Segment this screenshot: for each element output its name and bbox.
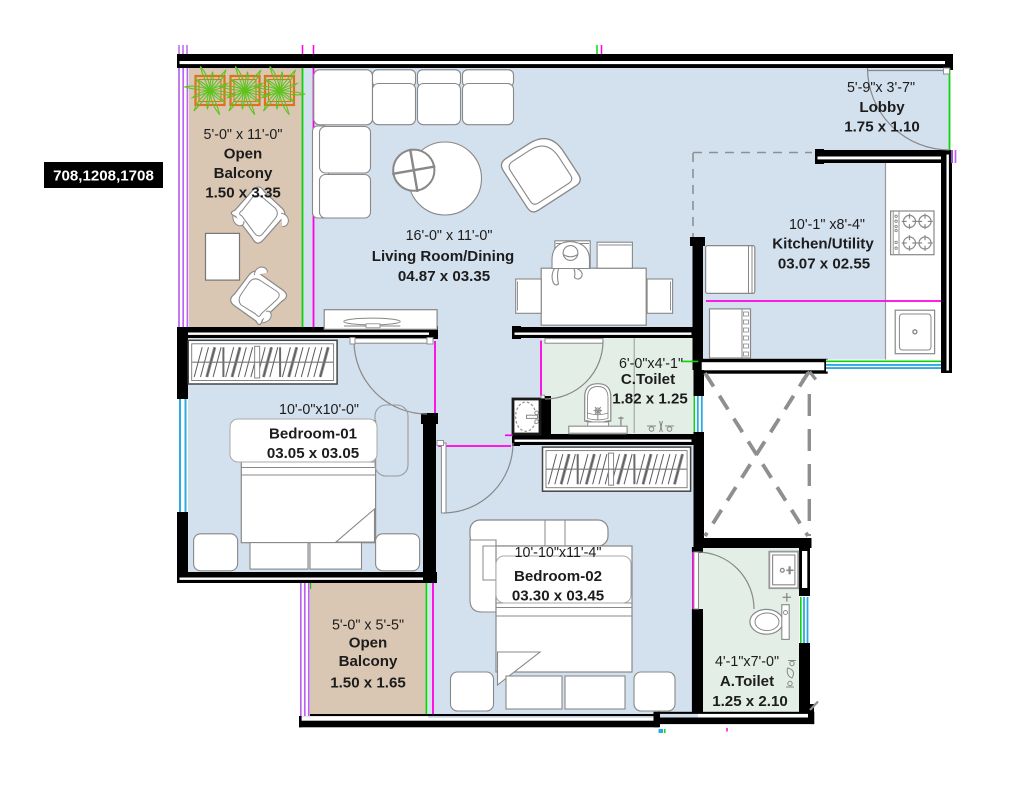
svg-text:C.Toilet: C.Toilet (621, 371, 675, 388)
svg-text:04.87 x 03.35: 04.87 x 03.35 (398, 268, 490, 285)
svg-text:5'-0" x 5'-5": 5'-0" x 5'-5" (332, 618, 404, 634)
svg-text:Open: Open (224, 146, 263, 163)
svg-text:Kitchen/Utility: Kitchen/Utility (772, 236, 874, 253)
svg-text:03.05 x 03.05: 03.05 x 03.05 (267, 445, 359, 462)
svg-text:5'-0" x 11'-0": 5'-0" x 11'-0" (204, 127, 283, 143)
svg-text:Lobby: Lobby (859, 99, 905, 116)
svg-text:Living Room/Dining: Living Room/Dining (372, 248, 515, 265)
svg-text:Open: Open (349, 635, 388, 652)
svg-text:4'-1"x7'-0": 4'-1"x7'-0" (715, 654, 779, 670)
svg-text:Balcony: Balcony (214, 165, 273, 182)
svg-text:A.Toilet: A.Toilet (720, 673, 774, 690)
svg-text:708,1208,1708: 708,1208,1708 (53, 168, 154, 185)
svg-text:03.07 x 02.55: 03.07 x 02.55 (778, 256, 870, 273)
svg-text:Bedroom-02: Bedroom-02 (514, 568, 602, 585)
svg-text:1.50 x 1.65: 1.50 x 1.65 (330, 675, 406, 692)
svg-text:6'-0"x4'-1": 6'-0"x4'-1" (619, 356, 683, 372)
svg-text:10'-0"x10'-0": 10'-0"x10'-0" (279, 402, 359, 418)
svg-text:10'-10"x11'-4": 10'-10"x11'-4" (515, 545, 602, 561)
svg-text:10'-1" x8'-4": 10'-1" x8'-4" (789, 217, 865, 233)
svg-text:1.50 x 3.35: 1.50 x 3.35 (205, 185, 281, 202)
svg-text:1.25 x 2.10: 1.25 x 2.10 (712, 693, 788, 710)
svg-text:Bedroom-01: Bedroom-01 (269, 426, 357, 443)
svg-text:Balcony: Balcony (339, 653, 398, 670)
svg-text:1.75 x 1.10: 1.75 x 1.10 (844, 119, 920, 136)
svg-text:1.82 x 1.25: 1.82 x 1.25 (612, 391, 688, 408)
svg-text:16'-0" x 11'-0": 16'-0" x 11'-0" (406, 228, 493, 244)
svg-text:5'-9"x 3'-7": 5'-9"x 3'-7" (847, 80, 915, 96)
svg-text:03.30 x 03.45: 03.30 x 03.45 (512, 588, 604, 605)
